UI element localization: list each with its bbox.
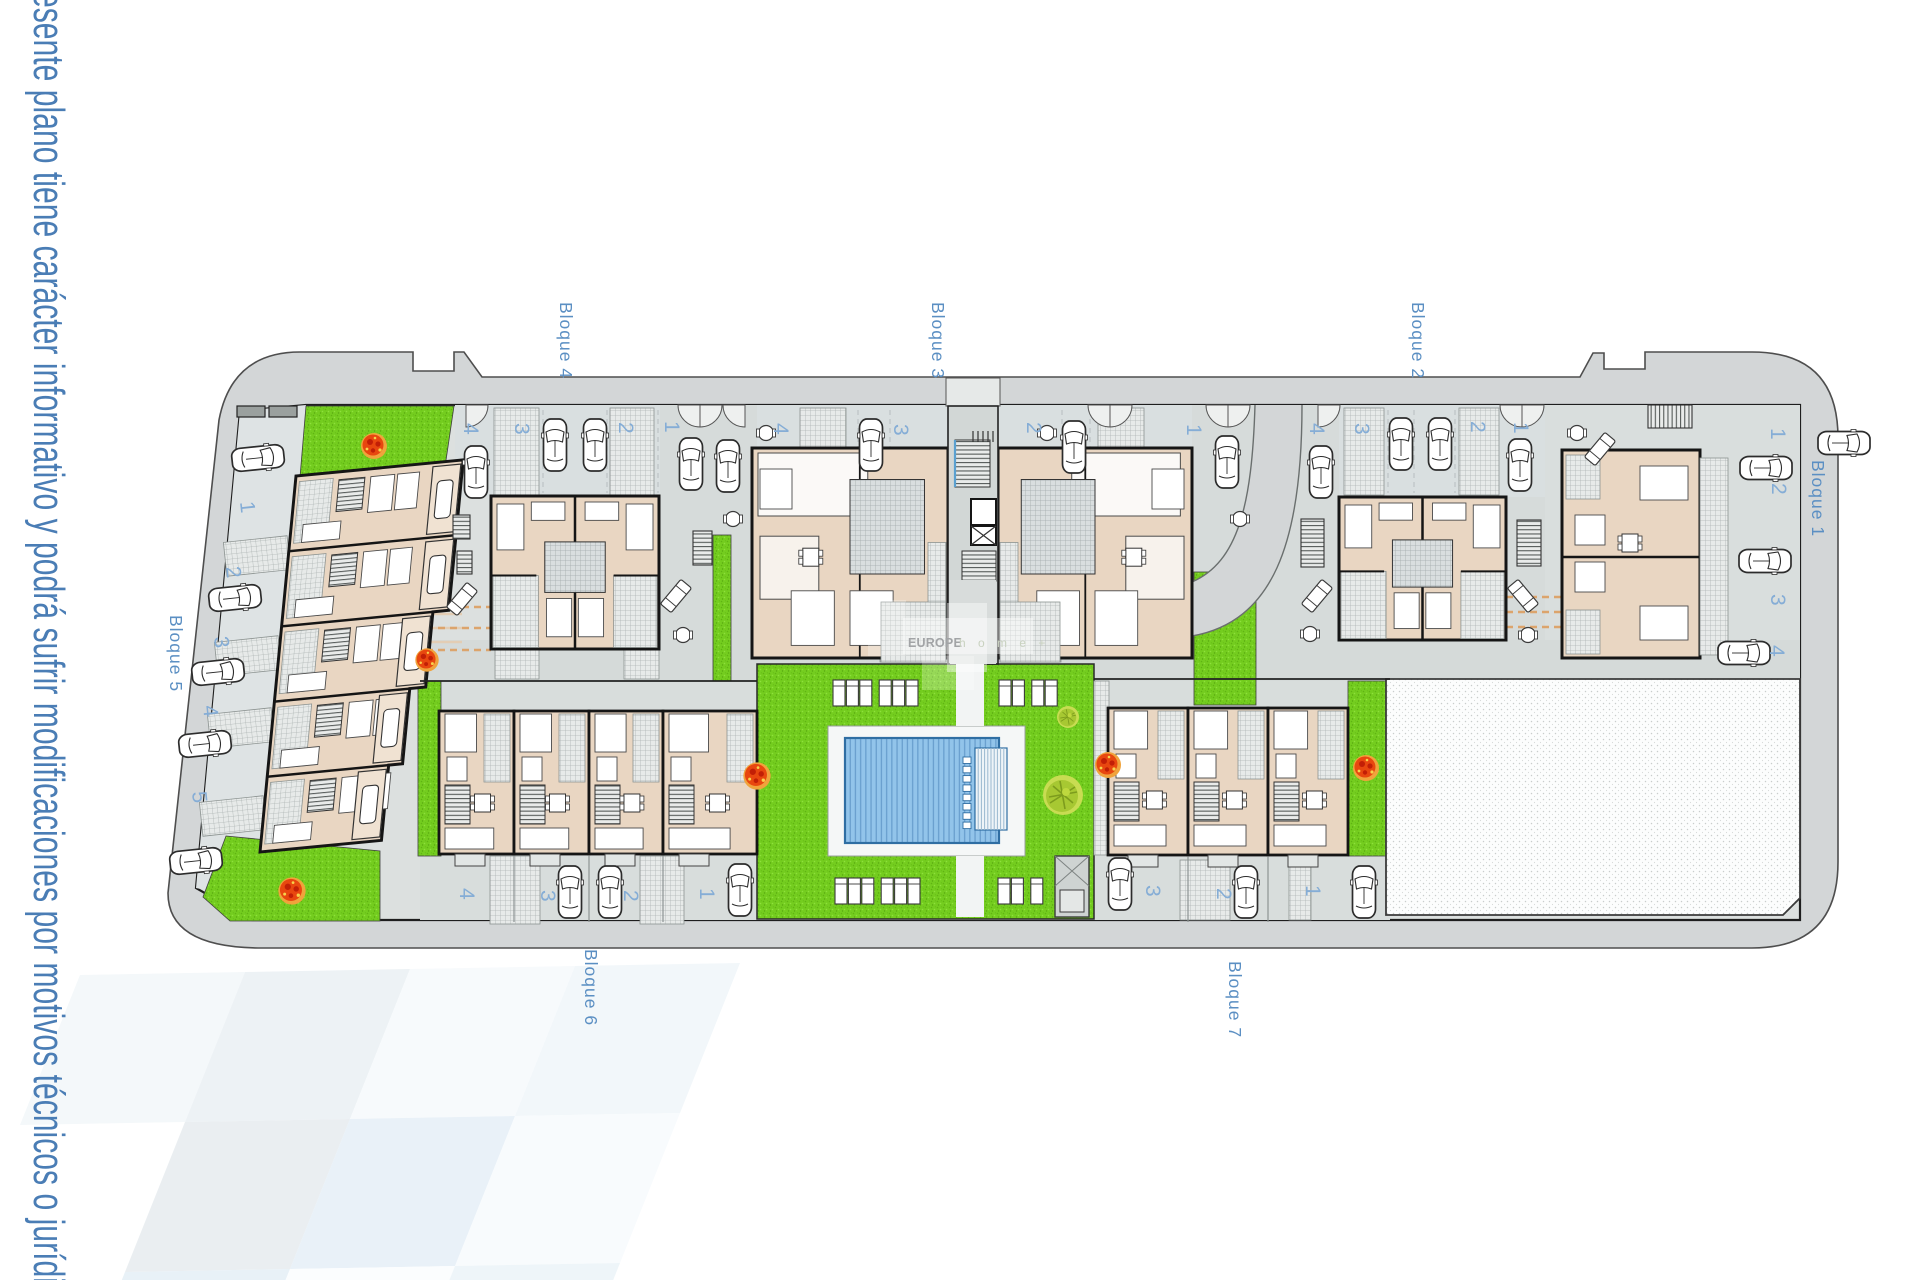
svg-text:3: 3 (1141, 885, 1164, 897)
svg-text:1: 1 (695, 888, 718, 900)
svg-text:4: 4 (1305, 423, 1328, 435)
svg-text:4: 4 (459, 423, 482, 435)
svg-text:3: 3 (536, 890, 559, 902)
svg-text:4: 4 (1765, 645, 1788, 657)
svg-text:1: 1 (1509, 422, 1532, 434)
svg-text:3: 3 (1350, 423, 1373, 435)
svg-text:Bloque 4: Bloque 4 (556, 302, 576, 379)
svg-text:2: 2 (1466, 421, 1489, 433)
svg-text:Bloque 3: Bloque 3 (928, 302, 948, 379)
svg-text:1: 1 (1766, 428, 1789, 440)
svg-text:4: 4 (455, 888, 478, 900)
svg-text:2: 2 (1767, 483, 1790, 495)
svg-text:Bloque 6: Bloque 6 (581, 949, 601, 1026)
svg-text:Bloque 2: Bloque 2 (1408, 302, 1428, 379)
svg-text:EUROPE: EUROPE (908, 636, 962, 650)
svg-text:1: 1 (1182, 424, 1205, 436)
svg-text:3: 3 (510, 423, 533, 435)
svg-text:5: 5 (187, 790, 211, 804)
svg-text:2: 2 (221, 565, 245, 579)
svg-text:2: 2 (614, 422, 637, 434)
svg-text:3: 3 (1766, 594, 1789, 606)
svg-text:Bloque 1: Bloque 1 (1808, 460, 1828, 537)
svg-text:Bloque 7: Bloque 7 (1225, 961, 1245, 1038)
svg-text:1: 1 (660, 421, 683, 433)
svg-text:Bloque 5: Bloque 5 (166, 615, 186, 692)
svg-text:2: 2 (619, 890, 642, 902)
svg-text:1: 1 (1301, 885, 1324, 897)
svg-text:3: 3 (889, 424, 912, 436)
svg-text:h o m e +: h o m e + (959, 636, 1050, 650)
svg-text:2: 2 (1022, 422, 1045, 434)
svg-text:1: 1 (235, 500, 259, 514)
svg-text:El presente plano tiene caráct: El presente plano tiene carácter informa… (25, 0, 74, 1280)
svg-text:2: 2 (1212, 888, 1235, 900)
svg-text:4: 4 (769, 423, 792, 435)
svg-text:3: 3 (209, 635, 233, 649)
